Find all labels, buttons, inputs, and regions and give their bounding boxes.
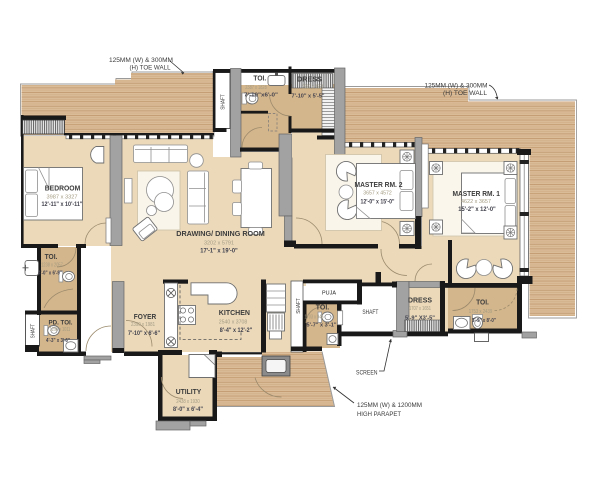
svg-text:3202 x 5791: 3202 x 5791	[204, 240, 234, 246]
svg-text:DRAWING/ DINING ROOM: DRAWING/ DINING ROOM	[176, 229, 265, 238]
svg-text:MASTER RM. 2: MASTER RM. 2	[355, 180, 403, 189]
svg-text:2387 x 1651: 2387 x 1651	[302, 84, 324, 90]
svg-text:MASTER RM. 1: MASTER RM. 1	[452, 189, 500, 198]
svg-text:8'-0" x 6'-4": 8'-0" x 6'-4"	[173, 407, 203, 413]
svg-text:1753 x 2439: 1753 x 2439	[469, 309, 493, 315]
svg-text:4622 x 3657: 4622 x 3657	[461, 199, 491, 205]
svg-text:125MM (W) & 300MM: 125MM (W) & 300MM	[109, 57, 173, 64]
svg-text:HIGH PARAPET: HIGH PARAPET	[357, 411, 401, 418]
svg-text:15'-2" x 12'-0": 15'-2" x 12'-0"	[458, 207, 496, 213]
svg-text:TOI.: TOI.	[476, 300, 489, 307]
svg-text:SCREEN: SCREEN	[356, 370, 378, 377]
svg-text:SHAFT: SHAFT	[296, 298, 302, 314]
svg-text:FOYER: FOYER	[134, 312, 157, 321]
svg-text:SHAFT: SHAFT	[221, 94, 227, 110]
svg-text:BEDROOM: BEDROOM	[45, 184, 81, 193]
svg-text:2390 x 1981: 2390 x 1981	[131, 322, 155, 328]
svg-text:4'-0" x 6'-9": 4'-0" x 6'-9"	[38, 270, 62, 276]
svg-text:7'-10" x 6'-6": 7'-10" x 6'-6"	[128, 331, 160, 337]
svg-text:(H) TOE WALL: (H) TOE WALL	[130, 65, 171, 72]
svg-text:DRESS: DRESS	[408, 295, 432, 304]
svg-text:2438 x 1930: 2438 x 1930	[176, 399, 200, 405]
svg-text:125MM (W) & 300MM: 125MM (W) & 300MM	[425, 83, 488, 90]
svg-text:3987 x 3327: 3987 x 3327	[47, 194, 78, 200]
svg-text:TOI.: TOI.	[253, 76, 266, 83]
svg-text:DRESS: DRESS	[297, 77, 322, 84]
svg-text:8'-4" x 12'-2": 8'-4" x 12'-2"	[220, 328, 253, 334]
svg-text:UTILITY: UTILITY	[176, 387, 202, 396]
svg-text:17'-1" x 19'-0": 17'-1" x 19'-0"	[200, 248, 238, 254]
svg-text:TOI.: TOI.	[45, 254, 58, 261]
svg-text:5'-7" x 3'-1": 5'-7" x 3'-1"	[307, 322, 337, 328]
svg-text:(H) TOE WALL: (H) TOE WALL	[443, 90, 487, 97]
svg-text:4'-3" x 3'-6": 4'-3" x 3'-6"	[46, 338, 70, 344]
svg-text:PUJA: PUJA	[322, 290, 336, 296]
svg-text:1707 x 1651: 1707 x 1651	[409, 306, 431, 312]
svg-text:12'-0" x 15'-0": 12'-0" x 15'-0"	[361, 199, 395, 205]
svg-text:5'-9" X3'-5": 5'-9" X3'-5"	[405, 315, 435, 321]
svg-text:SHAFT: SHAFT	[362, 309, 378, 316]
svg-text:12'-11" x 10'-11": 12'-11" x 10'-11"	[42, 202, 83, 208]
svg-text:2540 x 3708: 2540 x 3708	[219, 319, 248, 325]
svg-text:125MM (W) & 1200MM: 125MM (W) & 1200MM	[357, 402, 422, 409]
svg-text:TOI.: TOI.	[316, 305, 329, 312]
svg-text:1298 x 1011: 1298 x 1011	[50, 327, 71, 333]
svg-text:3657 x 4572: 3657 x 4572	[363, 191, 392, 197]
svg-text:KITCHEN: KITCHEN	[219, 308, 250, 317]
svg-text:2387 x 1828: 2387 x 1828	[245, 85, 267, 91]
svg-text:7'-10"x6'-0": 7'-10"x6'-0"	[244, 93, 278, 99]
svg-text:1703 x 945: 1703 x 945	[305, 314, 324, 320]
svg-text:SHAFT: SHAFT	[31, 323, 37, 338]
svg-text:7'-10" x 5'-5": 7'-10" x 5'-5"	[292, 93, 325, 99]
svg-text:1238 x 2057: 1238 x 2057	[41, 263, 63, 269]
svg-text:PD. TOI.: PD. TOI.	[49, 320, 73, 327]
svg-text:5'-9" x 8'-0": 5'-9" x 8'-0"	[472, 318, 496, 324]
